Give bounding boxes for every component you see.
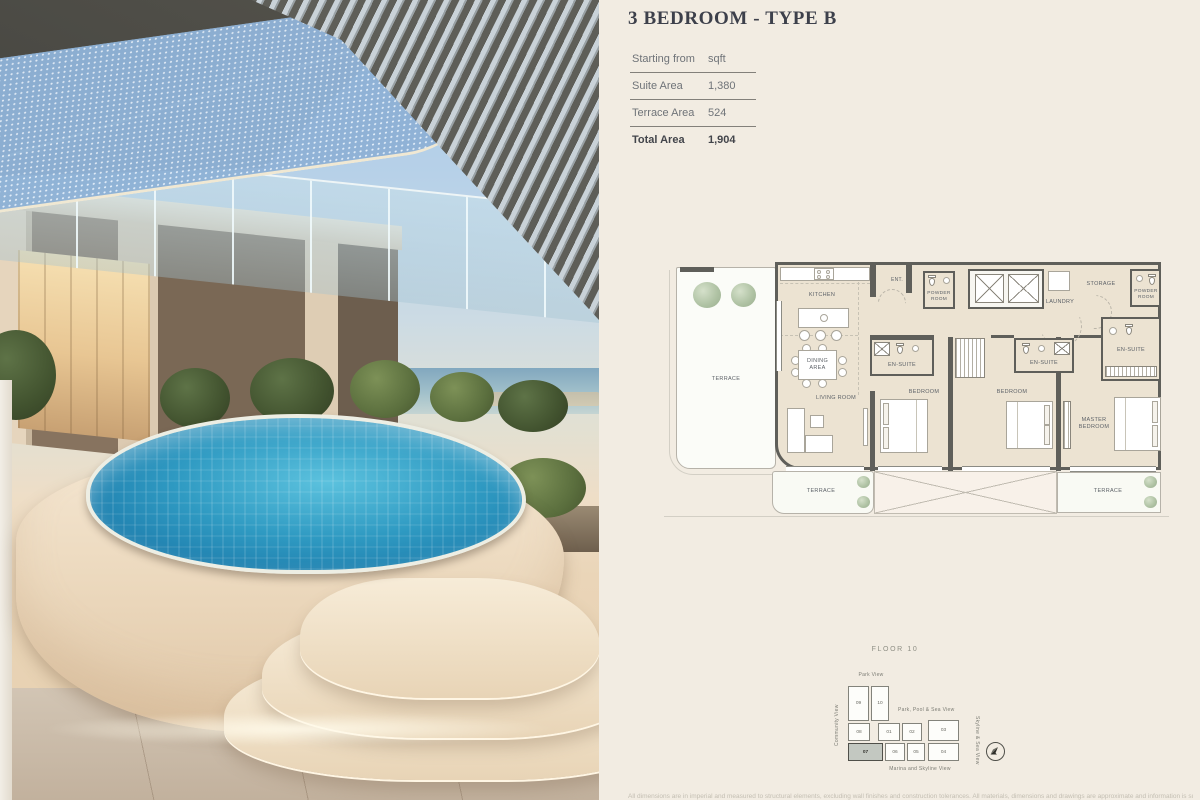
toilet-icon (1148, 274, 1156, 285)
view-label-top: Park View (846, 672, 896, 678)
keyplan-unit-04: 04 (928, 743, 959, 761)
terrace-bottom-right: TERRACE (1057, 472, 1161, 513)
side-wall (0, 380, 12, 800)
toilet-icon (928, 275, 936, 286)
tv-unit (863, 408, 868, 446)
chair (838, 356, 847, 365)
room-label-bedroom-2: BEDROOM (986, 389, 1038, 396)
room-label-terrace-br: TERRACE (1058, 488, 1158, 495)
key-plan: FLOOR 10 Park View Community View Park, … (820, 646, 1020, 786)
en-suite-3: EN-SUITE (1101, 317, 1161, 381)
hero-photo-penthouse-pool (0, 0, 599, 800)
plant-icon (857, 496, 870, 508)
keyplan-unit-05: 05 (907, 743, 925, 761)
room-label-ent: ENT. (884, 277, 910, 284)
chair (818, 379, 827, 388)
powder-room-2: POWDER ROOM (1130, 269, 1161, 307)
washer-icon (1054, 342, 1070, 355)
sink-icon (1136, 275, 1143, 282)
wall (680, 267, 714, 272)
powder-room-1: POWDER ROOM (923, 271, 955, 309)
area-table-header: Starting from sqft (630, 46, 756, 72)
plant (498, 380, 568, 432)
chair (802, 379, 811, 388)
area-header-unit: sqft (708, 53, 754, 65)
bed (1114, 397, 1161, 451)
view-label-center: Park, Pool & Sea View (898, 707, 994, 713)
sofa (787, 408, 805, 453)
page-title: 3 BEDROOM - TYPE B (628, 8, 837, 30)
burner (817, 270, 821, 274)
plant-icon (1144, 496, 1157, 508)
room-label-ensuite-3: EN-SUITE (1103, 347, 1159, 354)
keyplan-unit-01: 01 (878, 723, 900, 741)
keyplan-unit-10: 10 (871, 686, 889, 721)
wall (948, 337, 953, 471)
sink-icon (943, 277, 950, 284)
room-label-storage: STORAGE (1076, 281, 1126, 288)
washer-icon (874, 342, 890, 356)
laundry-appliance (1048, 271, 1070, 291)
floor-plan: TERRACE KITCHEN (676, 258, 1163, 520)
area-row-suite: Suite Area 1,380 (630, 73, 756, 99)
toilet-icon (1022, 343, 1030, 354)
view-label-bottom: Marina and Skyline View (860, 766, 980, 772)
stool (815, 330, 826, 341)
led-floor-glow (40, 712, 560, 746)
row-value: 1,380 (708, 80, 754, 92)
room-label-living: LIVING ROOM (804, 395, 868, 402)
stool (799, 330, 810, 341)
keyplan-unit-02: 02 (902, 723, 922, 741)
room-label-master: MASTER BEDROOM (1072, 417, 1116, 432)
plant (430, 372, 494, 422)
room-label-terrace: TERRACE (677, 376, 775, 383)
wardrobe-hatch (955, 338, 985, 378)
dashed-guide (780, 283, 870, 284)
dining-table: DINING AREA (798, 350, 837, 380)
row-label: Total Area (632, 134, 685, 146)
pool-step (300, 578, 599, 698)
bed (1006, 401, 1053, 449)
en-suite-1: EN-SUITE (870, 338, 934, 376)
dashed-guide (858, 267, 859, 395)
terrace-left: TERRACE (676, 267, 776, 469)
room-label-bedroom-1: BEDROOM (898, 389, 950, 396)
wardrobe-hatch (1063, 401, 1071, 449)
slab-bottom-line (664, 516, 1169, 517)
area-table: Starting from sqft Suite Area 1,380 Terr… (630, 46, 756, 153)
view-label-right: Skyline & Sea View (974, 716, 980, 765)
keyplan-unit-08: 08 (848, 723, 870, 741)
terrace-bottom-left: TERRACE (772, 471, 874, 514)
unit-outline: KITCHEN DINING AREA ENT. POWDER ROOM (775, 262, 1161, 470)
plant-icon (731, 283, 756, 307)
room-label-dining: DINING AREA (807, 358, 828, 373)
keyplan-unit-09: 09 (848, 686, 869, 721)
adjacent-terrace-crossed (874, 471, 1057, 514)
room-label-ensuite-1: EN-SUITE (872, 362, 932, 369)
elevator-core (968, 269, 1044, 309)
disclaimer: All dimensions are in imperial and measu… (628, 793, 1193, 800)
bed (880, 399, 928, 453)
stool (831, 330, 842, 341)
room-label-kitchen: KITCHEN (792, 292, 852, 299)
keyplan-title: FLOOR 10 (840, 646, 950, 653)
view-label-left: Community View (834, 704, 840, 746)
toilet-icon (896, 343, 904, 354)
row-label: Terrace Area (632, 107, 694, 119)
sink-icon (820, 314, 828, 322)
chair (838, 368, 847, 377)
room-label-ensuite-2: EN-SUITE (1016, 360, 1072, 367)
row-value: 524 (708, 107, 754, 119)
keyplan-unit-07-highlighted: 07 (848, 743, 883, 761)
room-label-terrace-bl: TERRACE (773, 488, 869, 495)
row-label: Suite Area (632, 80, 683, 92)
room-label-powder-2: POWDER ROOM (1132, 289, 1160, 302)
plant-icon (857, 476, 870, 488)
wall (870, 391, 875, 471)
burner (817, 275, 821, 279)
sink-icon (912, 345, 919, 352)
room-label-powder-1: POWDER ROOM (925, 291, 953, 304)
sliding-door (776, 301, 782, 371)
elevator-icon (975, 274, 1004, 303)
compass-icon (986, 742, 1005, 761)
keyplan-unit-06: 06 (885, 743, 905, 761)
sink-icon (1109, 327, 1117, 335)
area-row-total: Total Area 1,904 (630, 127, 756, 153)
row-value: 1,904 (708, 134, 754, 146)
sink-icon (1038, 345, 1045, 352)
elevator-icon (1008, 274, 1039, 303)
plant-icon (1144, 476, 1157, 488)
wardrobe-hatch (1105, 366, 1157, 377)
plant (350, 360, 420, 418)
burner (826, 275, 830, 279)
wall (991, 335, 1014, 338)
area-row-terrace: Terrace Area 524 (630, 100, 756, 126)
burner (826, 270, 830, 274)
coffee-table (810, 415, 824, 428)
en-suite-2: EN-SUITE (1014, 338, 1074, 373)
keyplan-unit-03: 03 (928, 720, 959, 741)
area-header-label: Starting from (632, 53, 695, 65)
sofa (805, 435, 833, 453)
wall (870, 265, 876, 297)
plant-icon (693, 282, 721, 308)
toilet-icon (1125, 324, 1133, 335)
